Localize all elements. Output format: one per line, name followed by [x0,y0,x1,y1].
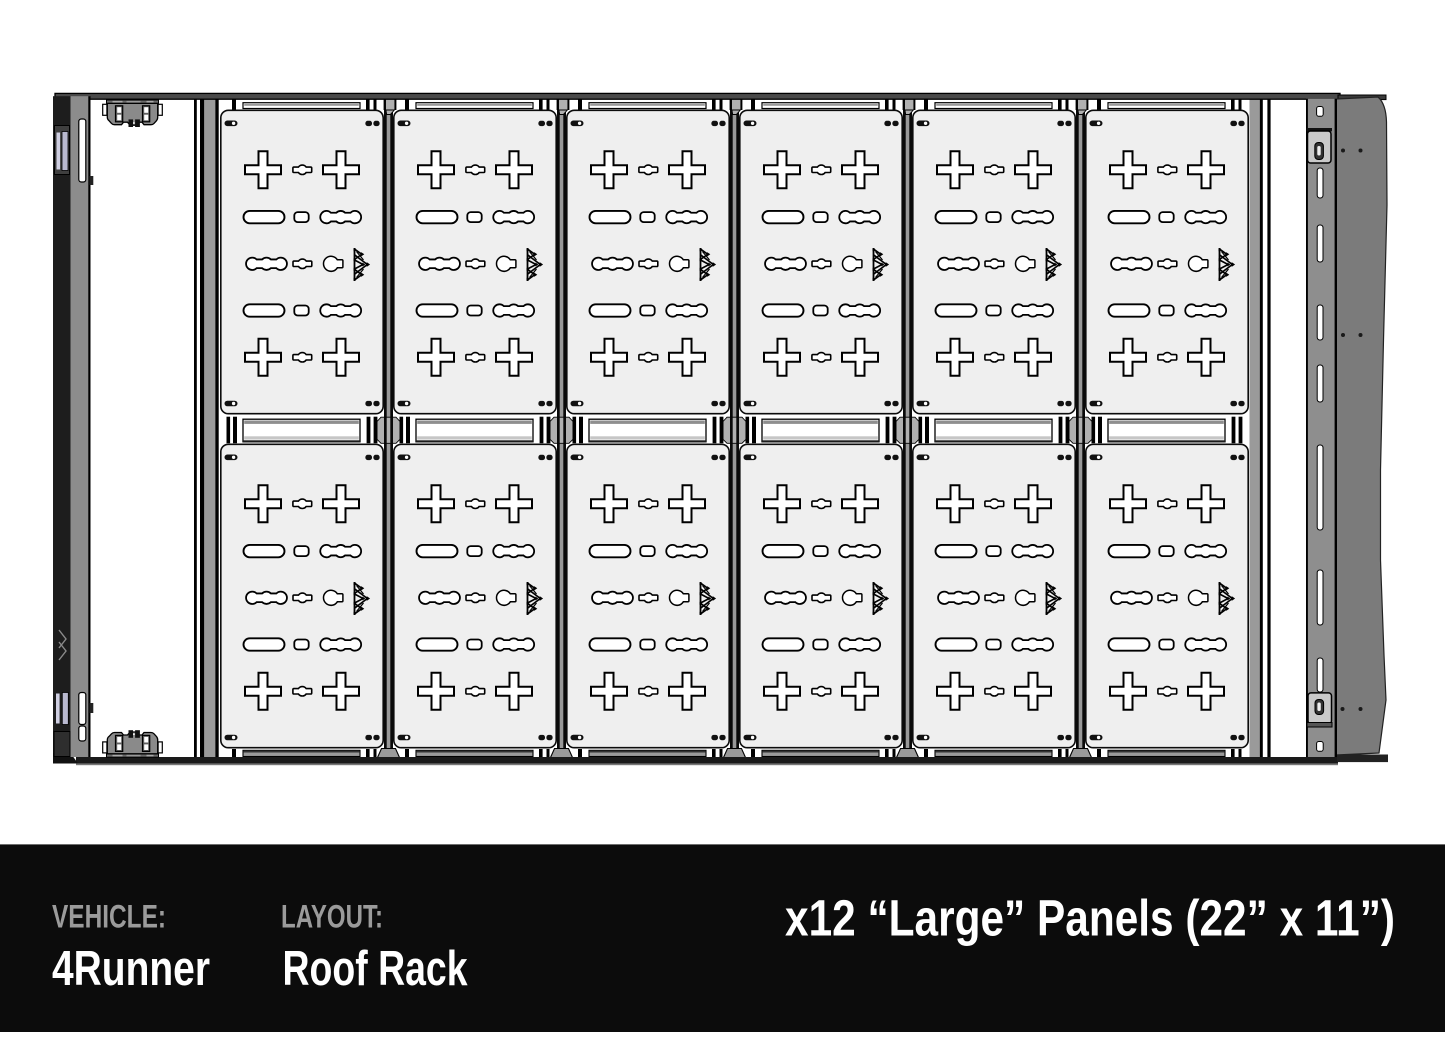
svg-text:x12 “Large” Panels (22” x 11”): x12 “Large” Panels (22” x 11”) [785,890,1395,947]
svg-text:LAYOUT:: LAYOUT: [281,899,383,935]
svg-text:Roof Rack: Roof Rack [283,942,469,996]
svg-text:VEHICLE:: VEHICLE: [52,899,166,935]
svg-text:4Runner: 4Runner [52,942,210,996]
